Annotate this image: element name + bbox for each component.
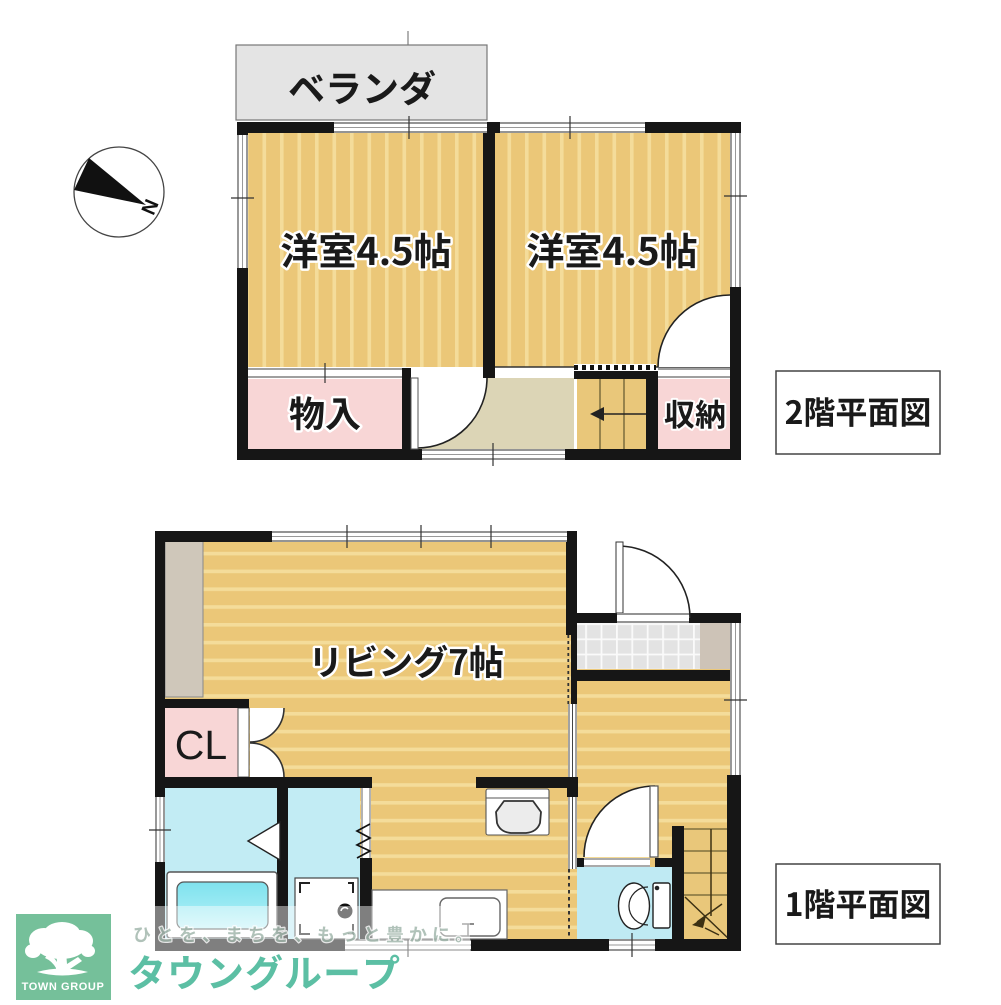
svg-text:CL: CL (175, 722, 227, 768)
svg-text:TOWN GROUP: TOWN GROUP (22, 981, 105, 993)
